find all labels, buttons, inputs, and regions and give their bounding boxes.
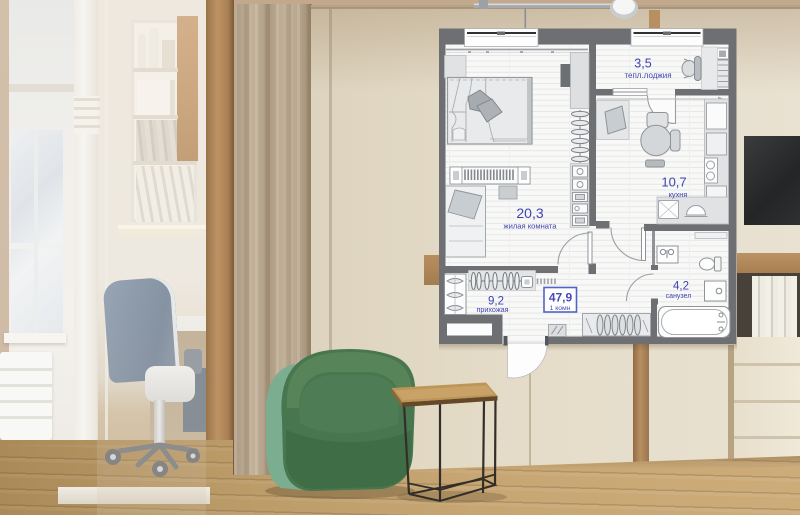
svg-text:кухня: кухня <box>669 190 688 199</box>
svg-text:3,5: 3,5 <box>634 57 651 71</box>
svg-text:санузел: санузел <box>666 293 692 300</box>
svg-text:20,3: 20,3 <box>516 205 543 221</box>
svg-text:10,7: 10,7 <box>661 175 686 190</box>
svg-text:прихожая: прихожая <box>476 305 508 314</box>
svg-text:1 комн: 1 комн <box>550 305 571 312</box>
svg-text:47,9: 47,9 <box>549 291 573 305</box>
svg-text:жилая комната: жилая комната <box>504 222 558 231</box>
svg-text:4,2: 4,2 <box>673 281 689 293</box>
svg-text:тепл.лоджия: тепл.лоджия <box>624 71 671 80</box>
